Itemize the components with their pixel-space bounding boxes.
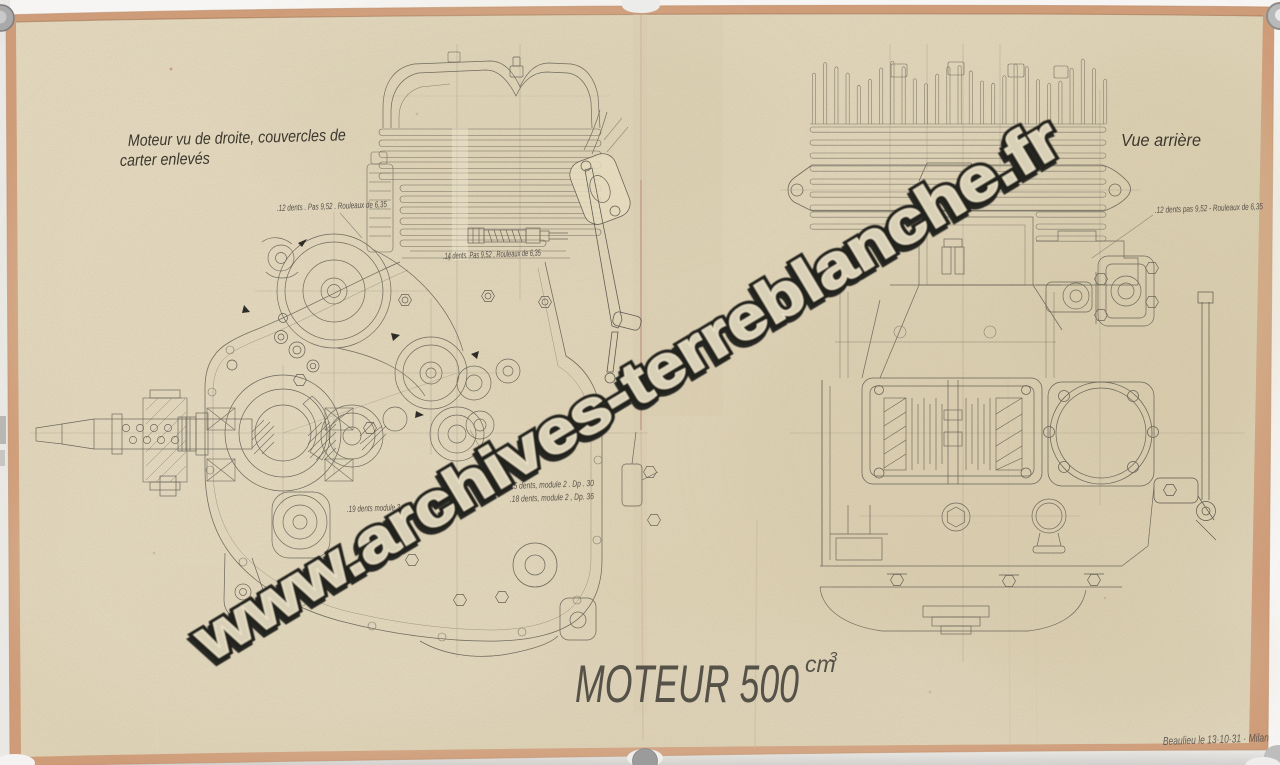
svg-text:MOTEUR 500: MOTEUR 500 (575, 655, 799, 714)
svg-text:carter enlevés: carter enlevés (120, 150, 210, 170)
svg-text:Vue arrière: Vue arrière (1121, 130, 1201, 150)
svg-text:3: 3 (829, 649, 838, 666)
